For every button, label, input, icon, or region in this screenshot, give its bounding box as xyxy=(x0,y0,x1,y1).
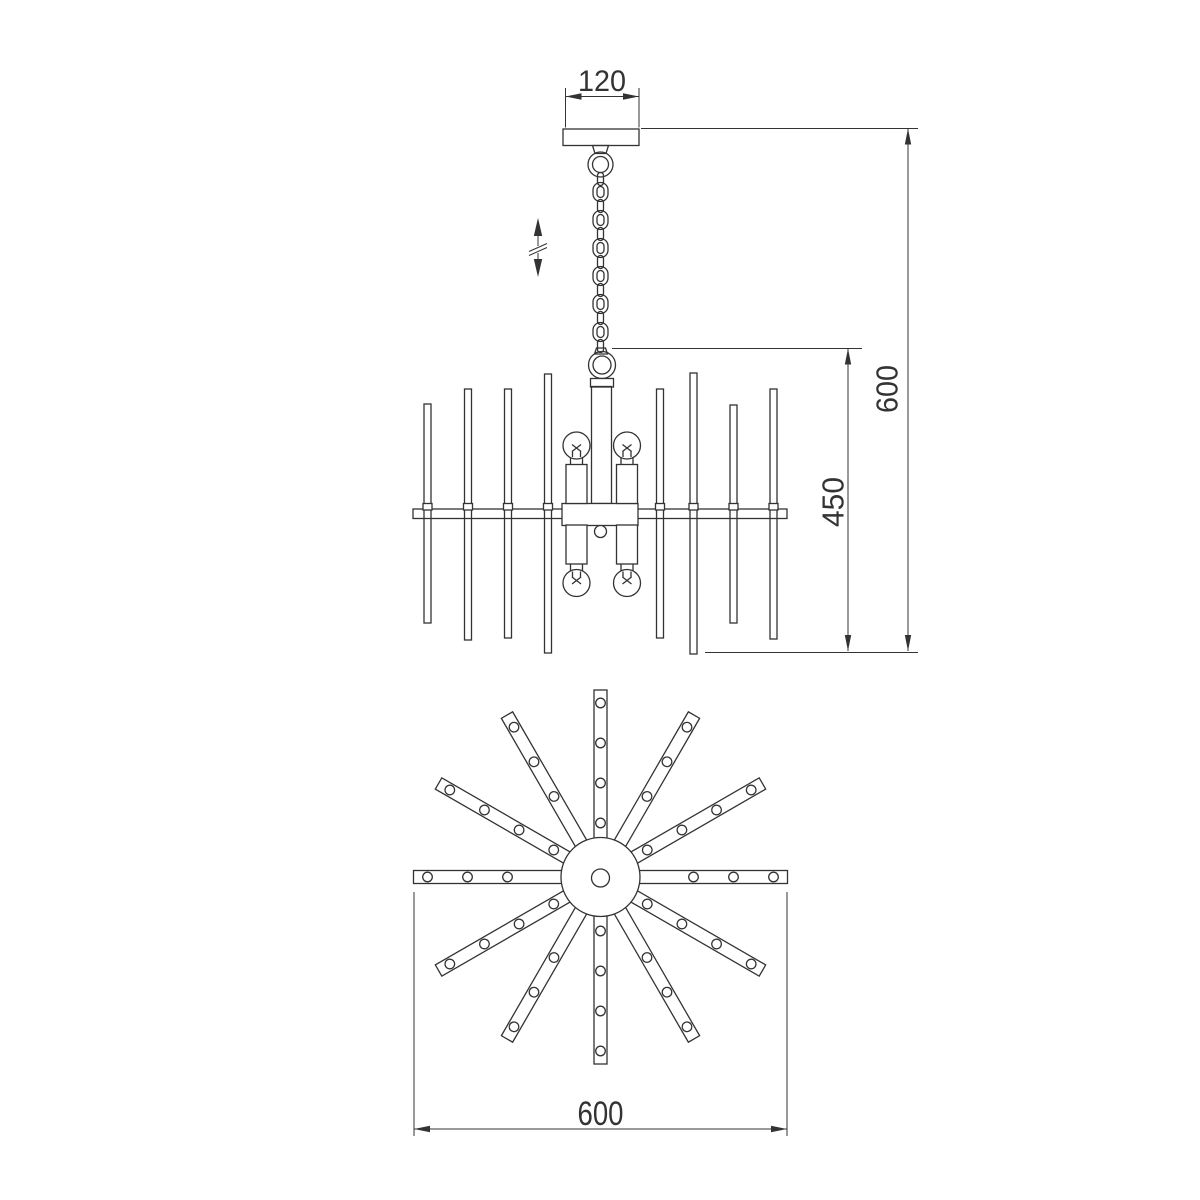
plan-arm xyxy=(594,905,607,1064)
ceiling-plate xyxy=(563,129,639,146)
plan-arm xyxy=(435,885,579,976)
plan-arm xyxy=(621,778,765,869)
bulb-up-right xyxy=(614,432,641,504)
rod xyxy=(730,405,737,623)
dim-canopy-width: 120 xyxy=(566,65,640,128)
plan-arm xyxy=(621,885,765,976)
ceiling-canopy xyxy=(563,129,639,177)
plan-hub xyxy=(561,838,640,917)
plan-arm xyxy=(594,690,607,849)
rod xyxy=(770,389,777,639)
bulb-down-left xyxy=(563,525,590,597)
bulb-up-left xyxy=(563,432,590,504)
chain xyxy=(593,173,608,353)
bulb-down-right xyxy=(614,525,641,597)
stem xyxy=(592,387,612,504)
plan-arm xyxy=(609,712,700,856)
hanging-ring-bottom xyxy=(589,348,616,387)
front-view xyxy=(413,129,787,654)
plan-view xyxy=(414,690,788,1064)
rod xyxy=(424,404,431,623)
dim-diameter: 600 xyxy=(414,892,787,1136)
plan-arm xyxy=(501,712,592,856)
rod xyxy=(690,373,697,654)
height-adjust-icon xyxy=(529,218,547,277)
hanging-ring-top xyxy=(588,152,613,177)
rod xyxy=(465,389,472,640)
dim-overall-height-label: 600 xyxy=(870,365,905,413)
plan-arm xyxy=(435,778,579,869)
plan-arm xyxy=(501,898,592,1042)
plan-arm xyxy=(629,871,788,884)
dim-overall-height: 600 xyxy=(641,129,918,652)
rod xyxy=(545,374,552,653)
plan-arm xyxy=(414,871,573,884)
dim-diameter-label: 600 xyxy=(578,1095,624,1133)
drawing-sheet: 120 600 450 xyxy=(0,0,1200,1200)
rod xyxy=(657,389,664,638)
dim-canopy-width-label: 120 xyxy=(578,65,626,98)
dim-body-height-label: 450 xyxy=(816,477,851,527)
plan-arm xyxy=(609,898,700,1042)
hub-finial-knob xyxy=(595,526,607,538)
hub-body xyxy=(562,504,638,526)
rod xyxy=(505,389,512,638)
